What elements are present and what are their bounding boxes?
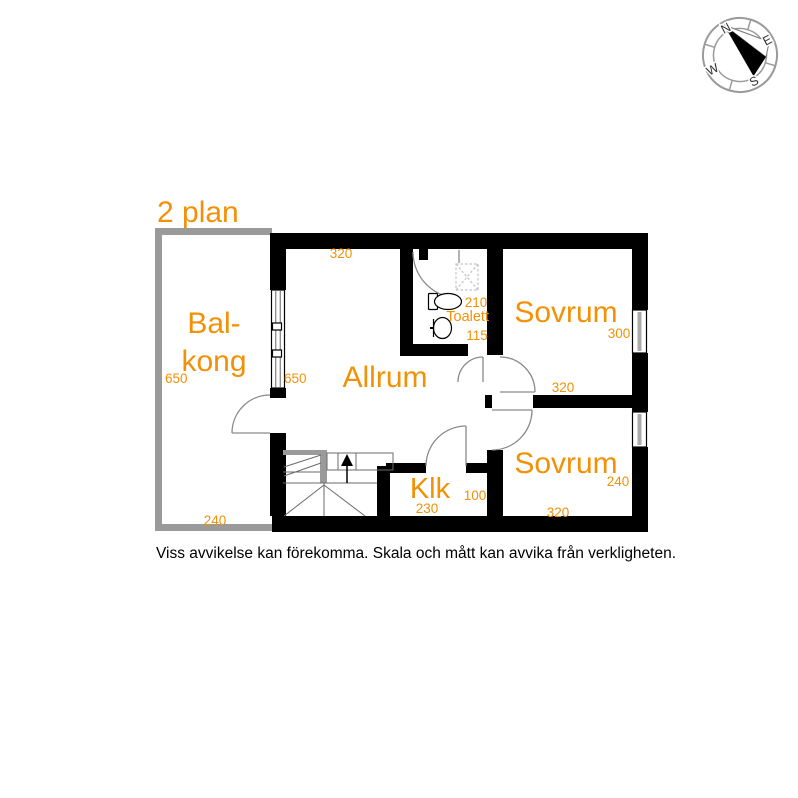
sovrum-top-label: Sovrum: [514, 296, 617, 329]
sovrum-top-door: [500, 357, 535, 392]
balkong-depth-measure: 650: [165, 371, 188, 386]
balkong-label-line1: Bal-: [187, 307, 240, 340]
klk-door: [426, 426, 466, 466]
toalett-label: Toalett: [446, 309, 489, 325]
sovrum-top-depth-measure: 300: [608, 326, 631, 341]
balkong-label-line2: kong: [181, 345, 246, 378]
floorplan-canvas: N E S W 2 plan: [0, 0, 798, 798]
sovrum-bottom-depth-measure: 240: [607, 474, 630, 489]
page-title: 2 plan: [157, 196, 239, 229]
sovrum-bottom-door: [492, 410, 532, 450]
compass-rose: N E S W: [690, 5, 790, 105]
toilet-lower-door: [458, 357, 483, 382]
balkong-width-measure: 240: [204, 513, 227, 528]
stairs-up-arrow: [341, 454, 353, 483]
toalett-depth-measure: 210: [465, 295, 488, 310]
balcony-window: [272, 290, 285, 388]
allrum-label: Allrum: [342, 361, 427, 394]
shower-area: [456, 264, 478, 290]
toalett-width-measure: 115: [466, 328, 488, 343]
wc-toilet-icon: [429, 294, 462, 310]
balcony-door: [232, 395, 270, 433]
floorplan-page: N E S W 2 plan: [0, 0, 798, 798]
allrum-depth-measure: 650: [284, 371, 307, 386]
staircase: [283, 450, 393, 516]
sovrum-top-width-measure: 320: [552, 380, 575, 395]
sovrum-bottom-width-measure: 320: [547, 505, 570, 520]
disclaimer-text: Viss avvikelse kan förekomma. Skala och …: [156, 545, 676, 562]
allrum-width-measure: 320: [330, 246, 353, 261]
sovrum-top-window: [633, 310, 647, 353]
klk-width-measure: 230: [416, 501, 439, 516]
sovrum-bottom-window: [633, 412, 647, 447]
sovrum-bottom-label: Sovrum: [514, 447, 617, 480]
klk-depth-measure: 100: [464, 488, 487, 503]
